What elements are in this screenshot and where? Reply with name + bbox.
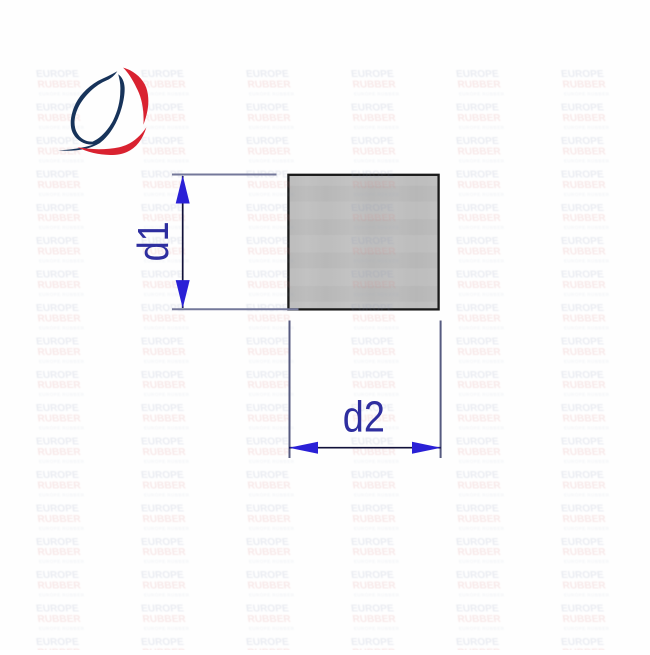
svg-text:d1: d1	[129, 221, 178, 261]
svg-text:d2: d2	[343, 392, 385, 441]
